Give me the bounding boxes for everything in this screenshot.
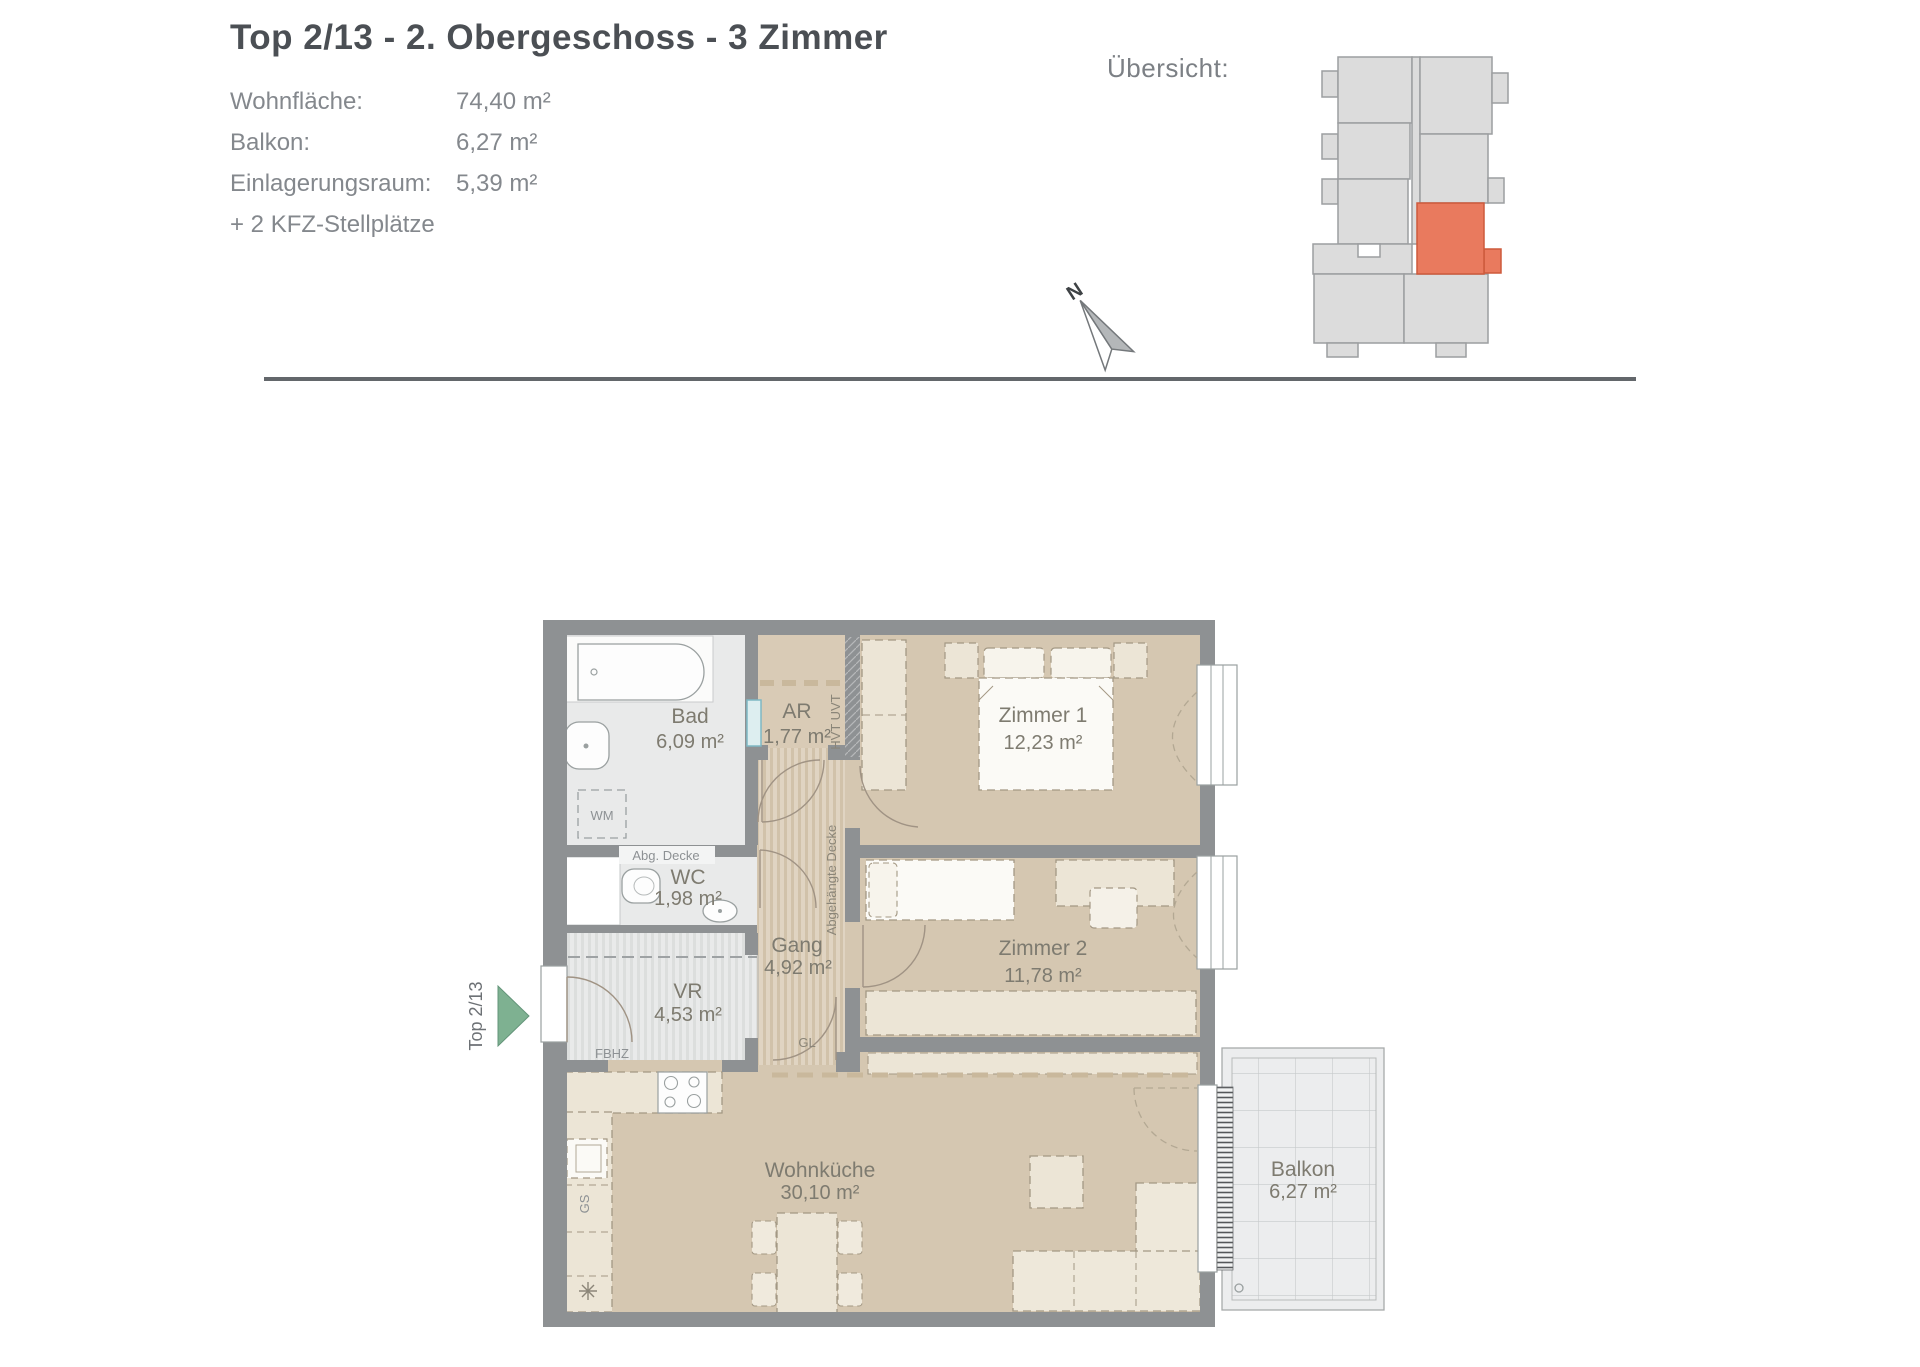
floorplan-page: Top 2/13 - 2. Obergeschoss - 3 Zimmer Wo… — [0, 0, 1920, 1367]
shaft-hatch — [845, 637, 860, 757]
window-zimmer1 — [1197, 665, 1237, 785]
gs-label: GS — [577, 1194, 592, 1213]
balcony-door — [1198, 1085, 1217, 1272]
north-arrow: N — [1040, 272, 1150, 387]
overview-label: Übersicht: — [1107, 53, 1229, 84]
wall-vr-bottom — [722, 1060, 758, 1072]
wall-left-upper — [543, 620, 567, 966]
wall-wc-bottom — [543, 925, 757, 933]
room-area-vr: 4,53 m² — [654, 1004, 722, 1026]
wall-zimmer-divider — [860, 845, 1200, 858]
desk-chair — [1090, 888, 1137, 928]
room-name-zimmer1: Zimmer 1 — [999, 704, 1088, 727]
apartment-floorplan: Top 2/13 Abg. Decke Bad 6,09 m² AR 1,77 … — [440, 580, 1420, 1350]
wall-gang-stub — [836, 1052, 860, 1072]
room-name-bad: Bad — [671, 705, 708, 728]
room-name-gang: Gang — [771, 934, 822, 957]
room-area-wc: 1,98 m² — [654, 888, 722, 910]
info-value: 5,39 m² — [456, 170, 537, 198]
room-name-zimmer2: Zimmer 2 — [999, 937, 1088, 960]
coffee-table — [1030, 1156, 1083, 1208]
wardrobe-zimmer2 — [866, 991, 1196, 1035]
floor-vr — [565, 933, 757, 1060]
wall-bottom — [543, 1312, 1215, 1327]
info-label: Wohnfläche: — [230, 88, 363, 115]
room-name-wc: WC — [671, 866, 706, 889]
info-row-einlagerungsraum: Einlagerungsraum: 5,39 m² — [230, 170, 710, 202]
info-row-balkon: Balkon: 6,27 m² — [230, 129, 710, 161]
overview-unit — [1420, 57, 1492, 134]
wall-right — [1200, 969, 1215, 1085]
overview-unit — [1314, 274, 1404, 343]
overview-balcony-tab — [1436, 343, 1466, 357]
overview-balcony-tab — [1322, 134, 1338, 159]
room-name-wohnkueche: Wohnküche — [765, 1159, 876, 1182]
hvt-uvt-label: HVT UVT — [828, 694, 843, 749]
wall-right — [1200, 1272, 1215, 1327]
shaft-niche — [565, 857, 620, 925]
room-name-ar: AR — [782, 700, 811, 723]
chair — [752, 1221, 776, 1254]
entrance-door — [541, 966, 567, 1042]
balcony-door-sill — [1217, 1087, 1233, 1270]
wall-gang-right — [845, 828, 860, 922]
room-area-zimmer1: 12,23 m² — [1004, 732, 1083, 754]
room-area-balkon: 6,27 m² — [1269, 1181, 1337, 1203]
overview-unit — [1338, 57, 1412, 123]
unit-label: Top 2/13 — [466, 981, 486, 1050]
entrance-marker: Top 2/13 — [466, 981, 529, 1050]
overview-balcony-tab — [1488, 178, 1504, 203]
cooktop — [658, 1072, 707, 1113]
overview-unit — [1404, 274, 1488, 343]
overview-balcony-tab — [1327, 343, 1358, 357]
room-name-balkon: Balkon — [1271, 1158, 1335, 1181]
sink-drain — [584, 744, 589, 749]
window-zimmer2 — [1197, 856, 1237, 969]
info-row-wohnflaeche: Wohnfläche: 74,40 m² — [230, 88, 710, 120]
overview-highlighted-body — [1417, 203, 1484, 274]
wall-vr-stub — [745, 933, 758, 955]
room-area-bad: 6,09 m² — [656, 731, 724, 753]
overview-corridor-notch — [1358, 244, 1380, 257]
info-label: Einlagerungsraum: — [230, 170, 431, 197]
pillow — [869, 863, 897, 917]
fbhz-label: FBHZ — [595, 1046, 629, 1061]
overview-highlighted-unit — [1417, 203, 1501, 274]
header-divider — [264, 377, 1636, 381]
chair — [838, 1221, 862, 1254]
sofa-chaise — [1136, 1183, 1200, 1253]
sofa — [1013, 1251, 1200, 1311]
abg-decke-label: Abg. Decke — [632, 848, 699, 863]
wall-right — [1200, 785, 1215, 856]
pillow — [1051, 648, 1111, 678]
bathtub-faucet — [591, 669, 597, 675]
overview-balcony-tab — [1492, 73, 1508, 103]
room-area-wohnkueche: 30,10 m² — [781, 1182, 860, 1204]
north-letter: N — [1063, 279, 1087, 305]
nightstand-right — [1114, 643, 1147, 678]
dining-table — [777, 1213, 837, 1315]
entrance-arrow-icon — [498, 986, 529, 1046]
overview-unit — [1420, 134, 1488, 203]
wall-left-lower — [543, 1042, 567, 1327]
overview-unit — [1338, 123, 1410, 179]
chair — [838, 1273, 862, 1306]
wall-zimmer2-wohnkueche — [860, 1037, 1200, 1052]
info-label: + 2 KFZ-Stellplätze — [230, 211, 435, 238]
info-row-kfz: + 2 KFZ-Stellplätze — [230, 211, 710, 243]
room-name-vr: VR — [673, 980, 702, 1003]
gl-label: GL — [798, 1035, 815, 1050]
wall-vr-stub — [745, 1038, 758, 1060]
room-area-gang: 4,92 m² — [764, 957, 832, 979]
overview-balcony-tab — [1322, 71, 1338, 97]
overview-highlighted-tab — [1484, 249, 1501, 273]
info-value: 6,27 m² — [456, 129, 537, 157]
overview-unit — [1338, 179, 1408, 244]
info-value: 74,40 m² — [456, 88, 551, 116]
sideboard — [868, 1053, 1197, 1074]
wm-label: WM — [590, 808, 613, 823]
overview-balcony-tab — [1322, 179, 1338, 204]
wall-right — [1200, 620, 1215, 665]
glass-shaft-element — [747, 700, 761, 746]
chair — [752, 1273, 776, 1306]
pillow — [984, 648, 1044, 678]
building-overview-minimap — [1300, 35, 1560, 365]
north-arrow-group: N — [1055, 274, 1134, 371]
wall-vr-bottom — [543, 1060, 608, 1072]
nightstand-left — [945, 643, 978, 678]
abgehaengte-decke-label: Abgehängte Decke — [824, 825, 839, 936]
info-label: Balkon: — [230, 129, 310, 156]
page-title: Top 2/13 - 2. Obergeschoss - 3 Zimmer — [230, 18, 888, 58]
wall-top — [543, 620, 1215, 635]
room-area-zimmer2: 11,78 m² — [1004, 965, 1082, 987]
room-area-ar: 1,77 m² — [763, 726, 831, 748]
